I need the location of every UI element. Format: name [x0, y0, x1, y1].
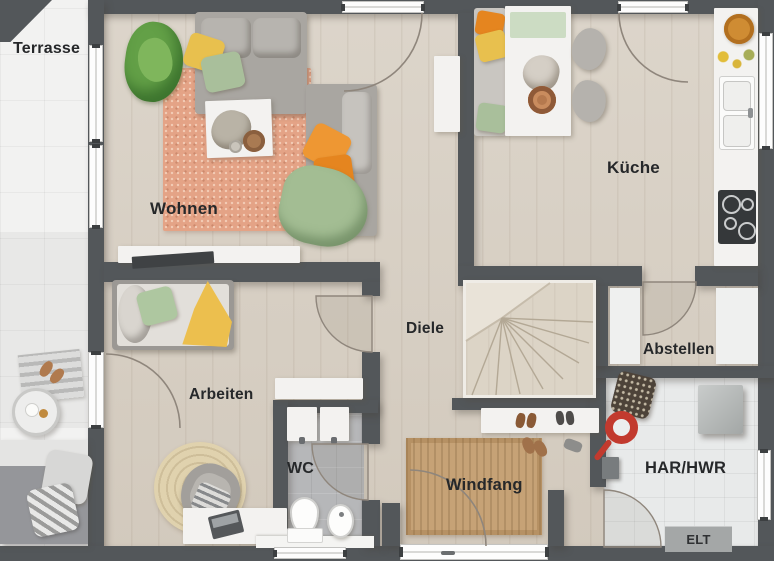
staircase	[463, 280, 596, 398]
table-bottle	[39, 409, 48, 418]
copper-bowl	[528, 86, 556, 114]
toilet-tank	[287, 528, 323, 543]
wall-kueche-south-right	[695, 266, 758, 286]
window-wohnen-1	[89, 45, 103, 142]
label-terrasse: Terrasse	[13, 40, 80, 58]
label-windfang: Windfang	[446, 476, 523, 495]
sink-basin-2	[723, 115, 751, 147]
abstellen-shelf-right	[716, 288, 758, 364]
wall-entry-stub-left	[382, 503, 400, 546]
wall-arbeiten-east-a	[362, 282, 380, 296]
label-arbeiten: Arbeiten	[189, 386, 253, 404]
front-door	[400, 544, 548, 560]
vacuum-red-ring	[605, 411, 638, 444]
shoe-shelf	[481, 408, 599, 433]
bidet	[327, 504, 354, 538]
window-wohnen-2	[89, 145, 103, 228]
burner-2	[741, 198, 754, 211]
wall-bottom	[0, 546, 774, 561]
door-kueche-garden	[618, 1, 688, 13]
label-diele: Diele	[406, 320, 444, 338]
wc-faucet-1	[299, 437, 305, 444]
window-kueche-right	[759, 33, 773, 149]
wall-arbeiten-east-b	[362, 352, 380, 444]
elt-box: ELT	[665, 526, 732, 552]
sink-basin-1	[723, 81, 751, 111]
bench-pillow-green	[475, 102, 509, 134]
outdoor-side-table	[12, 388, 60, 436]
wc-faucet-2	[331, 437, 337, 444]
wall-mounted-box	[602, 457, 619, 479]
label-abstellen: Abstellen	[643, 341, 715, 359]
burner-1	[722, 195, 741, 214]
bidet-drain	[339, 512, 344, 517]
laptop-screen	[211, 513, 238, 528]
table-runner	[510, 12, 566, 38]
burner-4	[738, 222, 756, 240]
wc-vanity-2	[320, 407, 349, 441]
boiler	[698, 385, 743, 434]
door-wohnen-garden	[342, 1, 424, 13]
label-har-hwr: HAR/HWR	[645, 459, 726, 478]
label-wc: WC	[287, 460, 314, 478]
label-elt: ELT	[686, 532, 710, 547]
sofa-back-cushion-right	[253, 18, 301, 58]
bowl-wood	[243, 130, 265, 152]
outdoor-pillow-zigzag	[26, 482, 81, 539]
front-door-handle	[441, 551, 455, 555]
label-wohnen: Wohnen	[150, 199, 218, 219]
window-har-right	[757, 450, 771, 520]
wardrobe-white	[434, 56, 460, 132]
wall-entry-stub-right	[548, 490, 564, 546]
flower-sprigs	[714, 44, 760, 76]
floor-plan: ELT	[0, 0, 774, 561]
fruit-bowl	[724, 14, 754, 44]
burner-3	[724, 217, 737, 230]
abstellen-shelf-left	[610, 288, 640, 364]
wc-vanity-1	[287, 407, 317, 441]
cabinet-above-wc	[275, 378, 363, 399]
sink-faucet	[748, 108, 753, 118]
bowl-small	[229, 140, 242, 153]
label-kueche: Küche	[607, 158, 660, 178]
table-candle	[25, 403, 39, 417]
door-terrace-arbeiten	[88, 352, 104, 428]
wall-wohnen-kueche	[458, 13, 474, 266]
cooktop	[718, 190, 756, 244]
kitchen-sink	[719, 76, 755, 150]
window-wc-bottom	[274, 547, 346, 559]
